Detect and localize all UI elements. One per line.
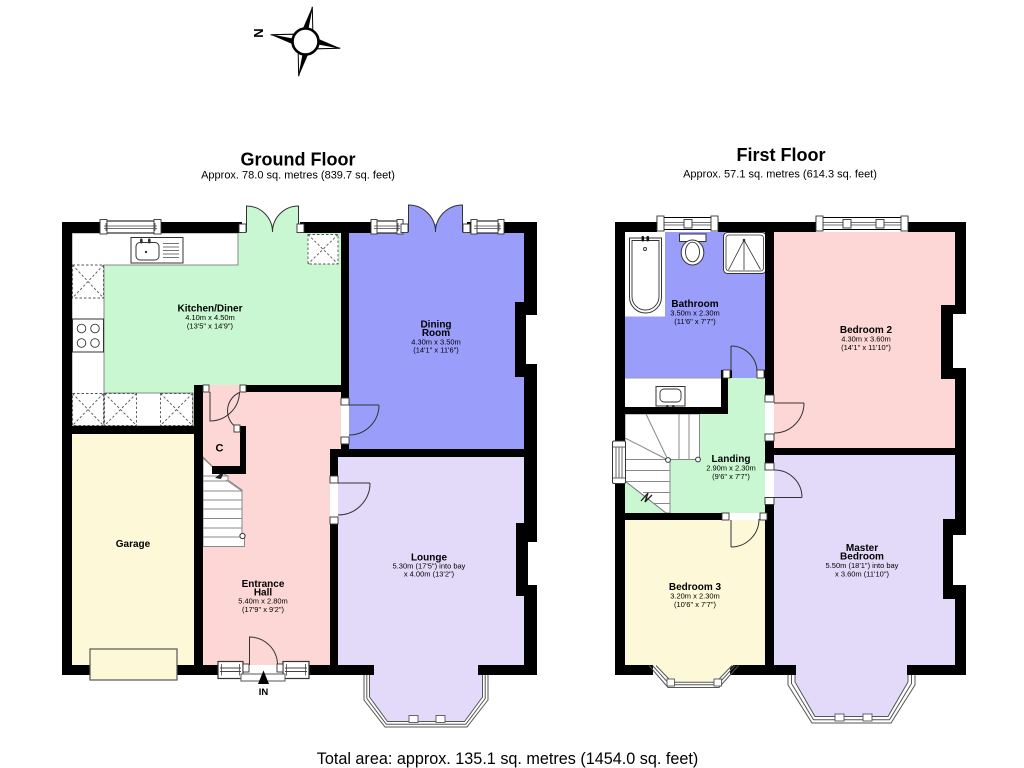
svg-text:Ground Floor: Ground Floor	[241, 150, 356, 170]
svg-text:(14'1" x 11'10"): (14'1" x 11'10")	[841, 343, 891, 352]
svg-text:First Floor: First Floor	[737, 145, 826, 165]
svg-text:(9'6" x 7'7"): (9'6" x 7'7")	[712, 472, 750, 481]
svg-text:x 3.60m (11'10"): x 3.60m (11'10")	[835, 570, 889, 579]
svg-text:Approx. 78.0 sq. metres (839.7: Approx. 78.0 sq. metres (839.7 sq. feet)	[201, 170, 395, 182]
svg-text:IN: IN	[259, 687, 269, 698]
svg-text:(11'6" x 7'7"): (11'6" x 7'7")	[674, 317, 716, 326]
svg-text:N: N	[251, 28, 266, 37]
svg-text:(14'1" x 11'6"): (14'1" x 11'6")	[413, 346, 459, 355]
svg-text:(13'5" x 14'9"): (13'5" x 14'9")	[187, 322, 234, 331]
svg-text:Total area: approx. 135.1 sq.: Total area: approx. 135.1 sq. metres (14…	[317, 750, 699, 768]
svg-text:Approx. 57.1 sq. metres (614.3: Approx. 57.1 sq. metres (614.3 sq. feet)	[683, 169, 877, 181]
svg-text:C: C	[216, 443, 224, 455]
svg-text:(10'6" x 7'7"): (10'6" x 7'7")	[674, 600, 716, 609]
svg-text:x 4.00m (13'2"): x 4.00m (13'2")	[404, 570, 455, 579]
svg-text:Garage: Garage	[116, 539, 151, 550]
svg-text:(17'9" x 9'2"): (17'9" x 9'2")	[242, 605, 284, 614]
